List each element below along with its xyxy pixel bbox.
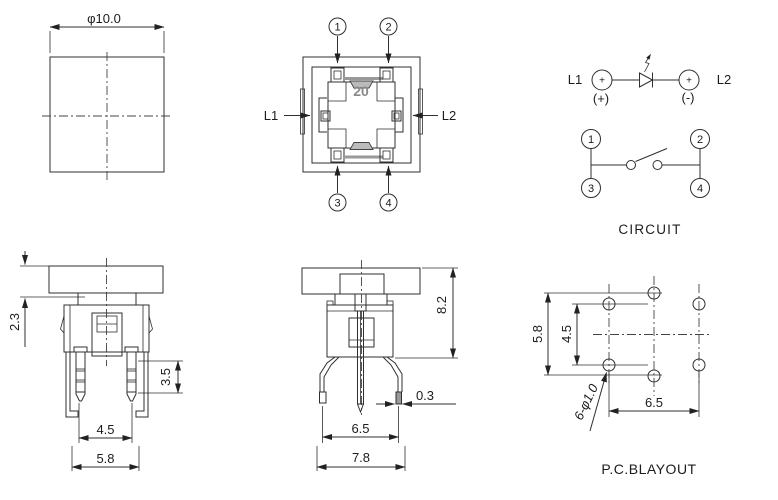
circuit-pin-3: 3	[588, 183, 594, 195]
front-view: 2.3 3.5 4.5 5.8	[7, 251, 183, 471]
dim-horizontal: 6.5	[645, 395, 663, 410]
frame-leg-right	[136, 352, 148, 417]
l1-label: L1	[568, 72, 582, 87]
dim-leg-thickness: 0.3	[416, 388, 434, 403]
contact-left	[627, 161, 636, 170]
pin-callout-4: 4	[385, 198, 391, 210]
switch-circuit: 1 2 3 4	[582, 130, 710, 198]
contact-right	[653, 161, 662, 170]
light-emission-icon	[645, 55, 651, 73]
pin-callout-3: 3	[334, 198, 340, 210]
plunger	[92, 313, 122, 356]
led-circuit: L1 + (+) + (-) L2	[568, 55, 731, 107]
terminal-pin-left	[74, 347, 87, 401]
right-polarity: (-)	[682, 90, 695, 105]
side-view: 8.2 0.3 6.5 7.8	[302, 260, 458, 471]
switch-top-view: 20 1 2 3 4 L1 L2	[264, 18, 456, 211]
switch-lever	[636, 149, 668, 162]
pcb-title: P.C.BLAYOUT	[601, 461, 696, 477]
bottom-clip	[350, 143, 373, 150]
l2-label: L2	[717, 72, 731, 87]
pin-3	[331, 148, 344, 162]
dim-cap-diameter: φ10.0	[87, 11, 121, 26]
center-pin	[358, 311, 364, 412]
dim-overall-width: 7.8	[352, 450, 370, 465]
drawing-sheet: φ10.0 20 1	[0, 0, 778, 500]
technical-drawing: φ10.0 20 1	[0, 0, 778, 500]
dim-cap-height: 2.3	[7, 313, 22, 331]
cap-boss	[340, 274, 384, 294]
pcb-layout-view: 5.8 4.5 6.5 6-φ1.0 P.C.BLAYOUT	[530, 276, 712, 477]
cap-side	[302, 268, 420, 294]
terminal-pin-right	[125, 347, 138, 401]
bent-leg-left	[320, 357, 340, 403]
pin-4	[380, 148, 393, 162]
circuit-pin-4: 4	[697, 183, 703, 195]
right-terminal-sign: +	[686, 76, 692, 87]
dim-pin-length: 3.5	[158, 368, 173, 386]
led-terminal-right-label: L2	[442, 108, 456, 123]
pin-callout-1: 1	[334, 22, 340, 34]
circuit-pin-1: 1	[588, 134, 594, 146]
cap-front	[49, 266, 163, 293]
pin-1	[331, 68, 344, 82]
dim-vertical-inner: 4.5	[559, 325, 574, 343]
cap-top-view: φ10.0	[42, 11, 172, 181]
led-terminal-left-label: L1	[264, 108, 278, 123]
pin-callout-2: 2	[385, 22, 391, 34]
dim-total-height: 8.2	[434, 296, 449, 314]
dim-leg-pitch: 6.5	[351, 421, 369, 436]
body-marking: 20	[353, 83, 369, 99]
neck	[78, 293, 136, 305]
plunger-side	[355, 294, 366, 311]
circuit-pin-2: 2	[697, 134, 703, 146]
dim-vertical-outer: 5.8	[530, 325, 545, 343]
dim-pin-pitch: 4.5	[96, 422, 114, 437]
circuit-title: CIRCUIT	[618, 222, 681, 237]
circuit-view: L1 + (+) + (-) L2 1 2 3 4	[568, 55, 731, 238]
body-side	[327, 305, 393, 357]
hole-callout: 6-φ1.0	[571, 381, 602, 423]
dim-body-width: 5.8	[96, 451, 114, 466]
left-polarity: (+)	[593, 91, 609, 106]
left-terminal-sign: +	[599, 76, 605, 87]
led-icon	[640, 73, 653, 87]
bent-leg-right	[383, 357, 402, 404]
